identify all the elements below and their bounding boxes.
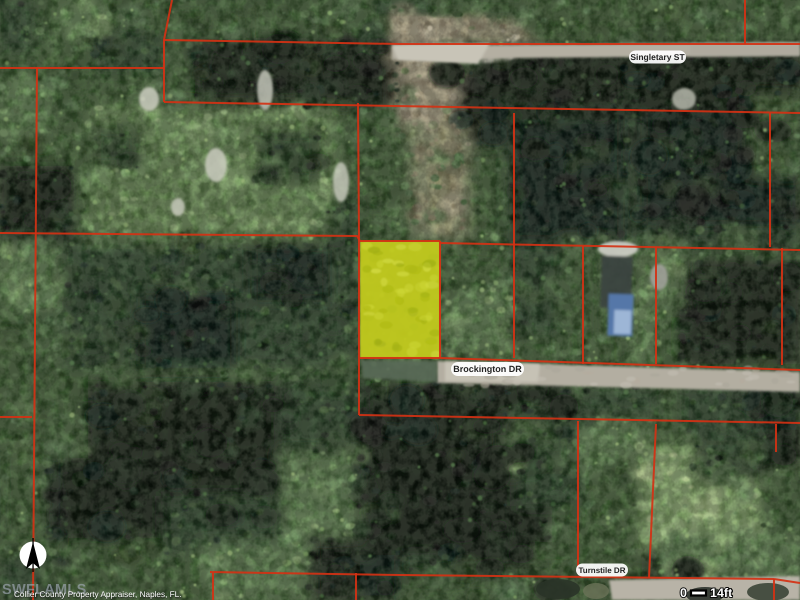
svg-text:Singletary ST: Singletary ST (630, 52, 685, 62)
svg-text:Turnstile DR: Turnstile DR (579, 566, 626, 575)
svg-text:14ft: 14ft (710, 586, 733, 600)
svg-text:Collier County Property Apprai: Collier County Property Appraiser, Naple… (14, 590, 181, 599)
svg-text:0: 0 (680, 586, 687, 600)
svg-text:Brockington DR: Brockington DR (453, 364, 522, 374)
